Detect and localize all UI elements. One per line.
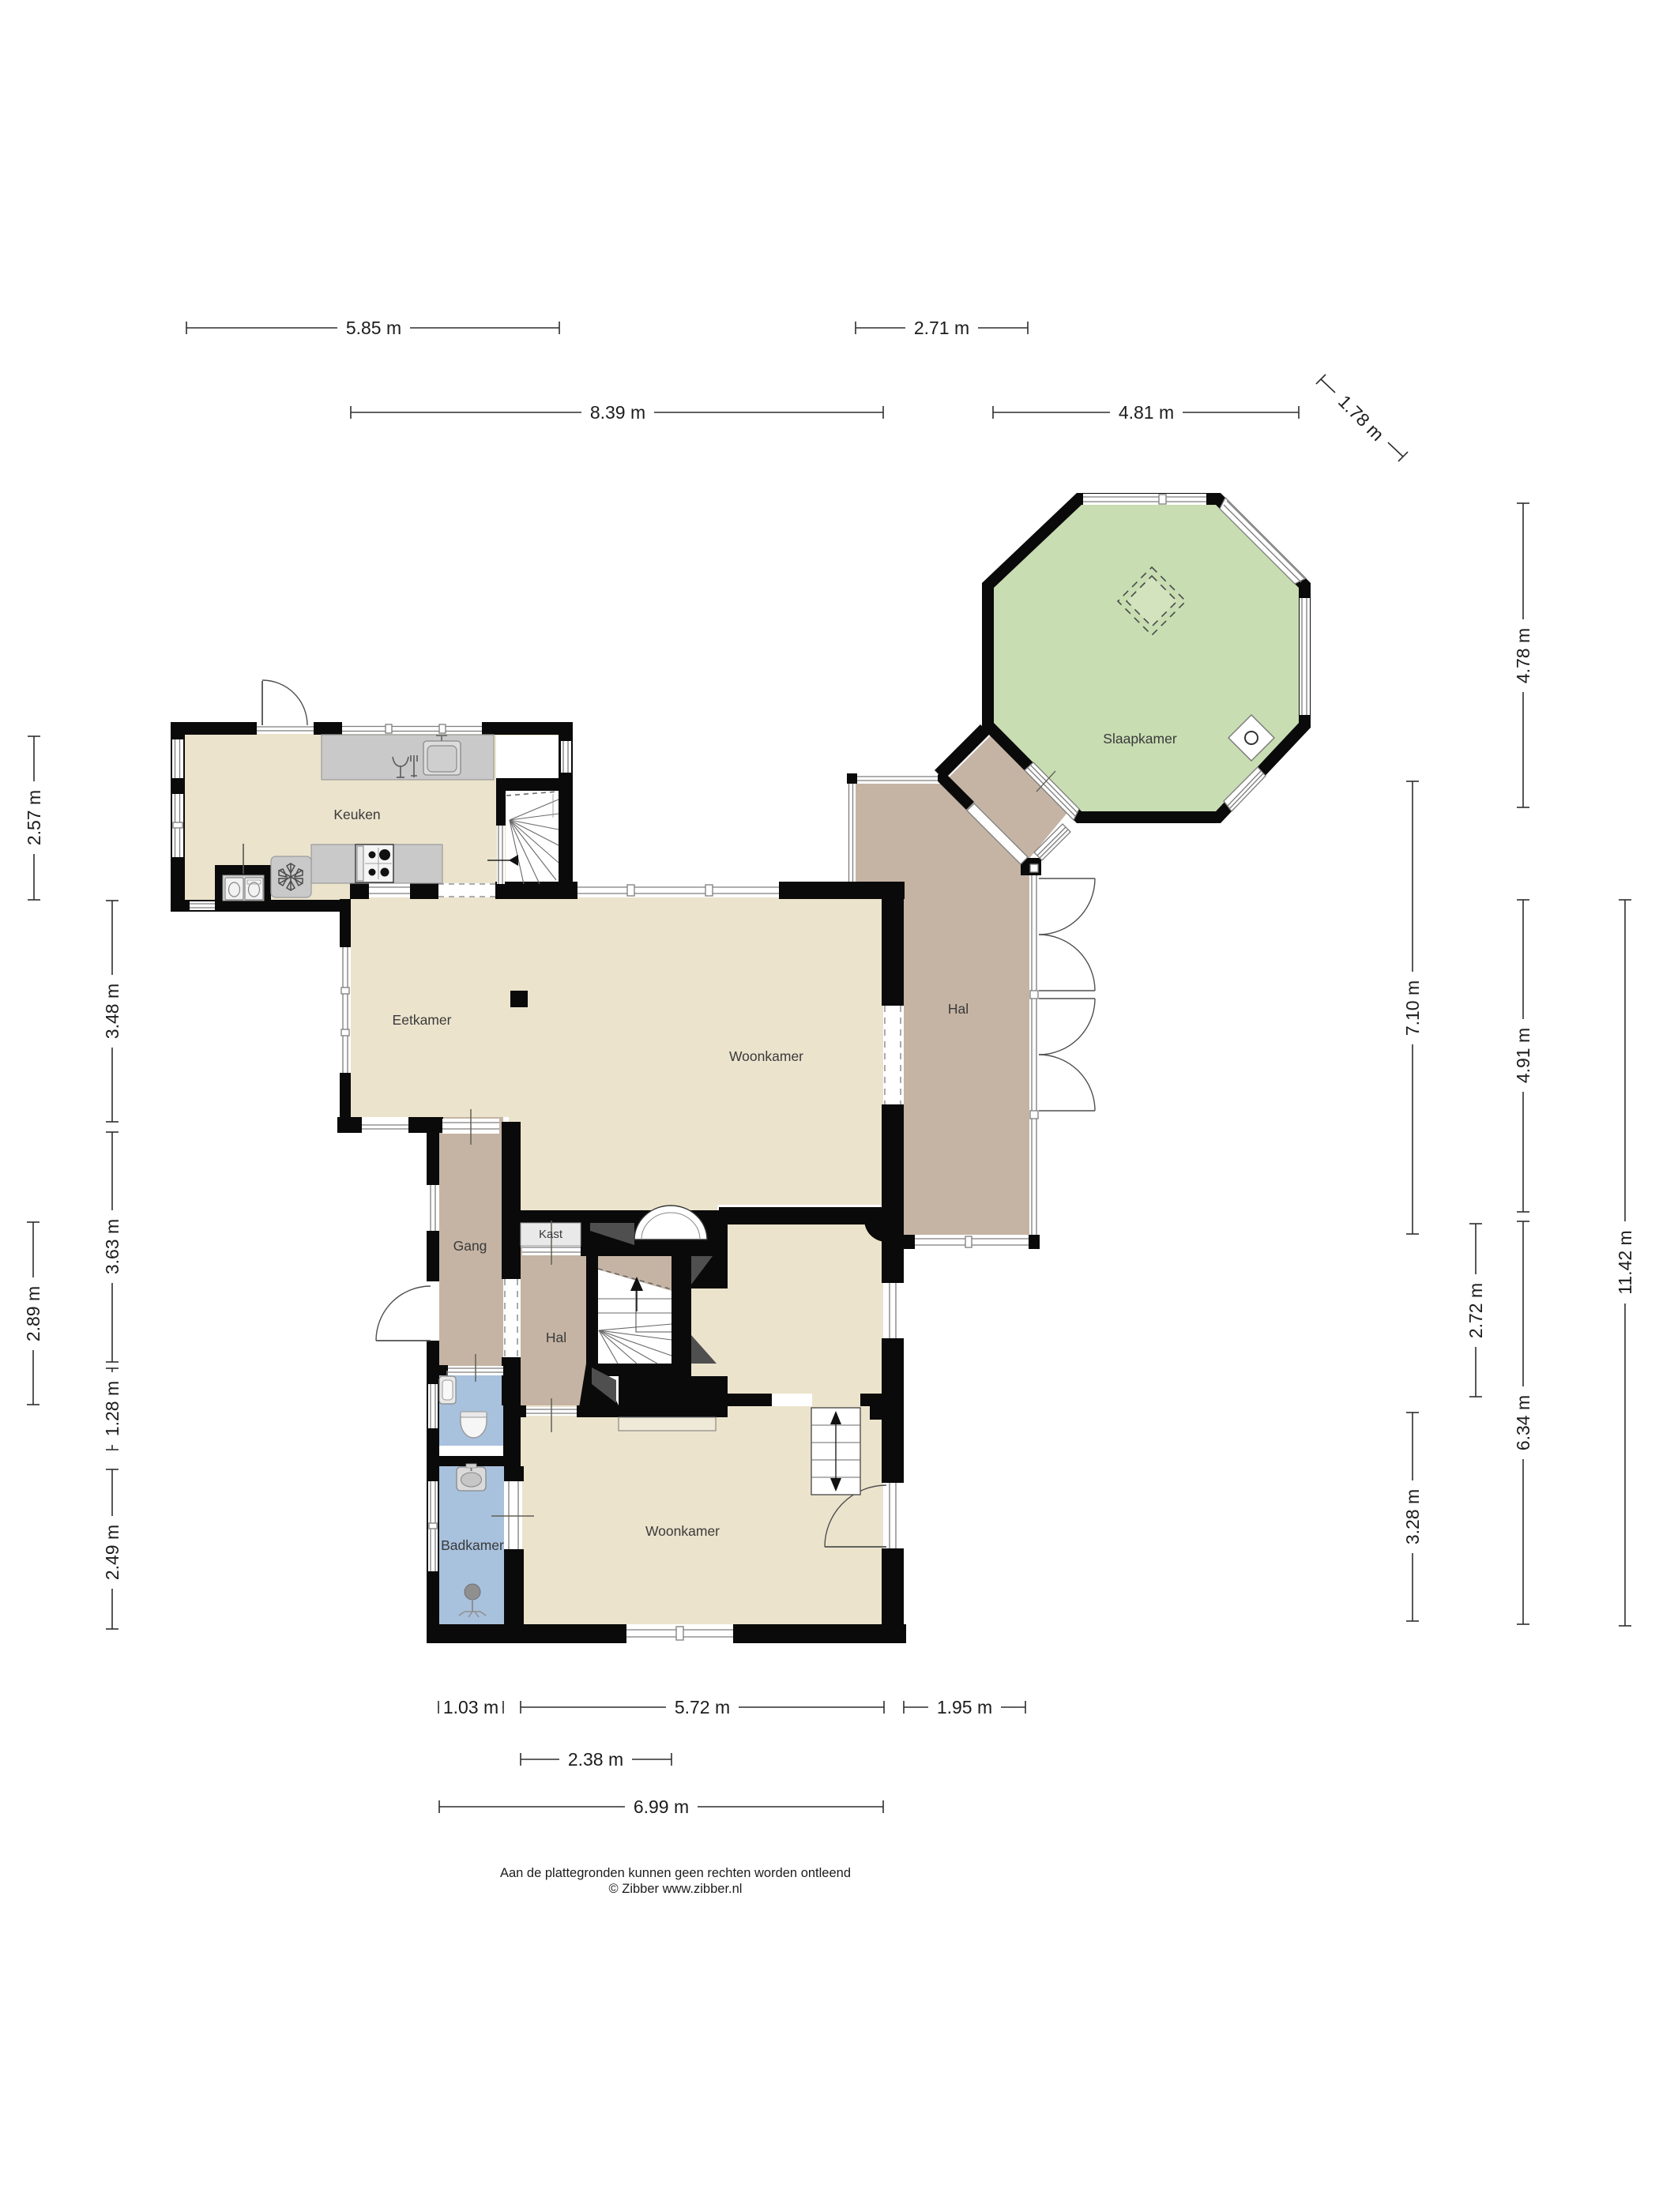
svg-text:Hal: Hal xyxy=(948,1001,969,1017)
svg-text:Aan de plattegronden kunnen ge: Aan de plattegronden kunnen geen rechten… xyxy=(500,1866,851,1880)
svg-text:Woonkamer: Woonkamer xyxy=(645,1523,720,1539)
svg-text:Gang: Gang xyxy=(453,1238,487,1254)
svg-text:1.28 m: 1.28 m xyxy=(102,1381,122,1436)
svg-text:Hal: Hal xyxy=(546,1330,566,1345)
svg-text:6.34 m: 6.34 m xyxy=(1513,1395,1533,1450)
svg-text:2.57 m: 2.57 m xyxy=(24,790,44,845)
svg-text:1.95 m: 1.95 m xyxy=(937,1697,992,1717)
svg-text:4.91 m: 4.91 m xyxy=(1513,1028,1533,1083)
svg-text:5.72 m: 5.72 m xyxy=(675,1697,730,1717)
svg-text:2.38 m: 2.38 m xyxy=(568,1749,623,1770)
svg-text:4.78 m: 4.78 m xyxy=(1513,628,1533,683)
svg-text:8.39 m: 8.39 m xyxy=(590,402,645,423)
svg-text:4.81 m: 4.81 m xyxy=(1119,402,1174,423)
svg-text:1.78 m: 1.78 m xyxy=(1334,391,1388,445)
svg-text:3.28 m: 3.28 m xyxy=(1402,1489,1423,1544)
svg-text:Woonkamer: Woonkamer xyxy=(729,1048,803,1064)
svg-text:3.63 m: 3.63 m xyxy=(102,1219,122,1274)
svg-text:Badkamer: Badkamer xyxy=(441,1537,504,1553)
svg-text:6.99 m: 6.99 m xyxy=(634,1796,689,1817)
svg-text:Slaapkamer: Slaapkamer xyxy=(1103,731,1177,747)
svg-text:© Zibber www.zibber.nl: © Zibber www.zibber.nl xyxy=(609,1882,743,1896)
svg-text:Keuken: Keuken xyxy=(333,807,380,822)
svg-text:3.48 m: 3.48 m xyxy=(102,984,122,1039)
svg-text:1.03 m: 1.03 m xyxy=(443,1697,498,1717)
svg-text:5.85 m: 5.85 m xyxy=(346,318,401,338)
svg-text:2.72 m: 2.72 m xyxy=(1465,1283,1486,1338)
svg-text:2.49 m: 2.49 m xyxy=(102,1525,122,1580)
svg-text:2.71 m: 2.71 m xyxy=(914,318,969,338)
svg-text:Kast: Kast xyxy=(539,1228,563,1241)
svg-text:Eetkamer: Eetkamer xyxy=(393,1012,452,1028)
svg-text:2.89 m: 2.89 m xyxy=(23,1286,43,1341)
svg-text:7.10 m: 7.10 m xyxy=(1402,980,1423,1036)
svg-text:11.42 m: 11.42 m xyxy=(1615,1230,1635,1294)
